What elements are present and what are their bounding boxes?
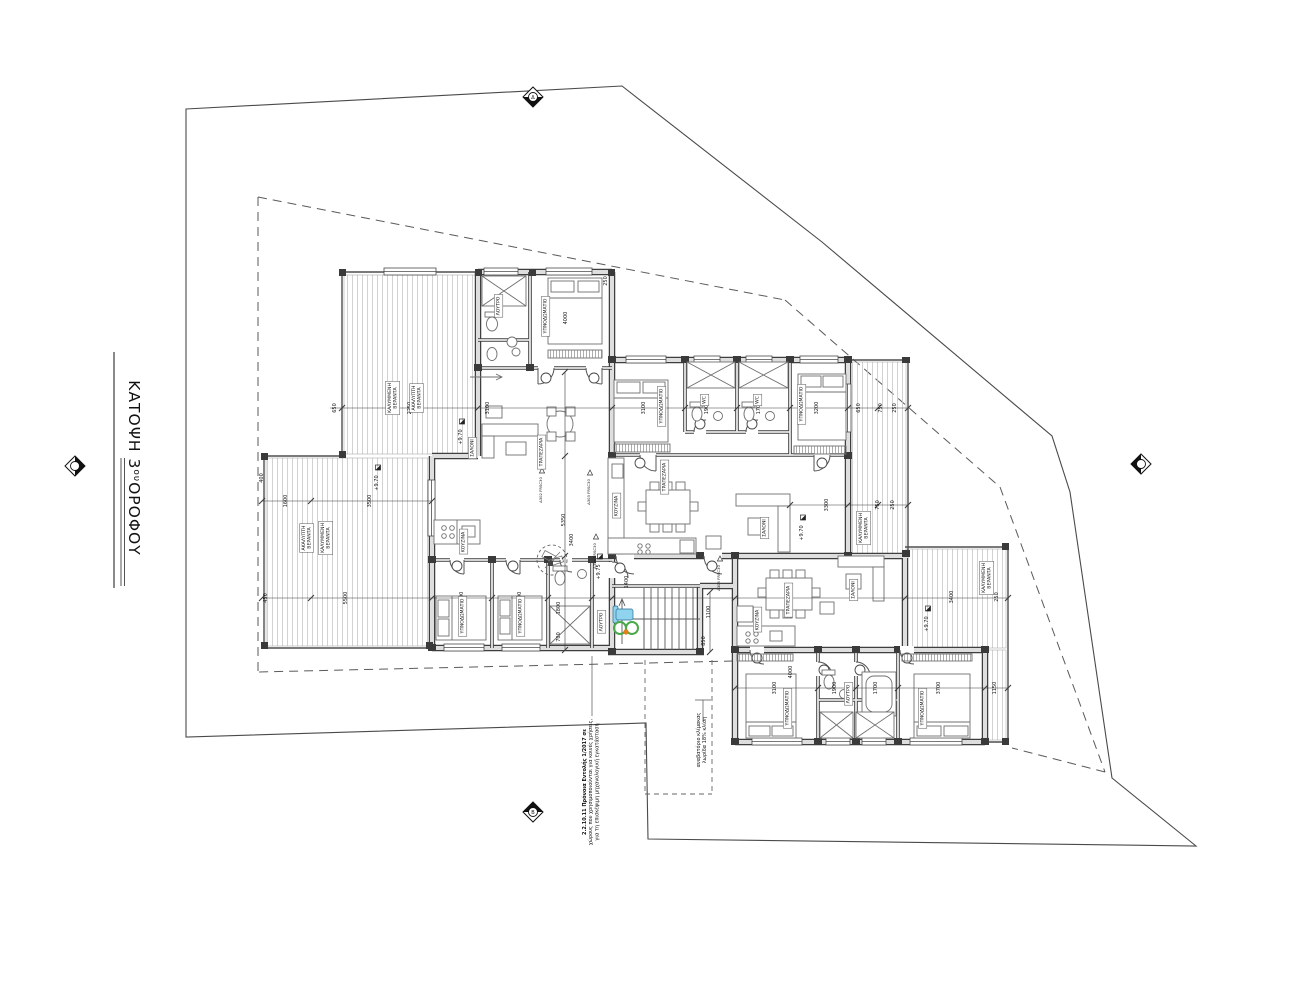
dimension-label: 250 bbox=[890, 500, 896, 510]
dimension-label: 650 bbox=[332, 403, 338, 413]
benchmark-marker-icon: Β bbox=[523, 802, 543, 822]
svg-text:+9.70: +9.70 bbox=[924, 616, 930, 631]
floor-plan-page: 6502250310031001900170032006507502502504… bbox=[0, 0, 1308, 981]
svg-text:Δ: Δ bbox=[531, 95, 535, 101]
svg-text:ΣΑΛΟΝΙ: ΣΑΛΟΝΙ bbox=[851, 581, 857, 599]
room-label: ΑΚΑΛΥΠΤΗΒΕΡΑΝΤΑ bbox=[410, 384, 424, 413]
dimension-label: 3500 bbox=[367, 495, 373, 508]
coffee-table bbox=[506, 442, 526, 455]
sink bbox=[578, 570, 587, 579]
fire-door-tag: Δ304 FRSC30 bbox=[592, 534, 599, 569]
fire-door-tag: Δ303 FRSC30 bbox=[586, 470, 593, 505]
dimension-label: 1700 bbox=[873, 682, 879, 695]
room-label: ΥΠΝΟΔΩΜΑΤΙΟ bbox=[918, 688, 926, 728]
benchmark-marker-icon bbox=[65, 456, 85, 476]
page-title: ΚΑΤΟΨΗ 3ουΟΡΟΦΟΥ bbox=[125, 380, 143, 555]
room-label: ΚΟΥΖΙΝΑ bbox=[753, 607, 761, 632]
shower bbox=[856, 712, 894, 738]
svg-text:2.2.10.11 Πρόνοια Εντολής 1/20: 2.2.10.11 Πρόνοια Εντολής 1/2017 σε bbox=[581, 729, 588, 835]
svg-text:ΥΠΝΟΔΩΜΑΤΙΟ: ΥΠΝΟΔΩΜΑΤΙΟ bbox=[920, 690, 926, 726]
veranda-top-left bbox=[344, 275, 476, 454]
window bbox=[502, 644, 540, 651]
svg-text:λωρίδα 18% κλίση: λωρίδα 18% κλίση bbox=[701, 717, 708, 764]
room-label: ΤΡΑΠΕΖΑΡΙΑ bbox=[784, 583, 792, 617]
dimension-label: 400 bbox=[259, 473, 265, 483]
room-label: ΚΑΛΥΜΜΕΝΗΒΕΡΑΝΤΑ bbox=[980, 561, 994, 594]
lift-seat bbox=[616, 609, 633, 620]
window bbox=[910, 738, 962, 745]
dining-table-round bbox=[547, 407, 575, 441]
window bbox=[826, 738, 850, 745]
room-label: ΥΠΝΟΔΩΜΑΤΙΟ bbox=[516, 596, 524, 636]
room-label: ΤΡΑΠΕΖΑΡΙΑ bbox=[537, 435, 545, 469]
room-label: ΣΑΛΟΝΙ bbox=[468, 437, 476, 458]
dimension-label: 750 bbox=[875, 500, 881, 510]
dimension-label: 1400 bbox=[624, 576, 630, 589]
svg-text:ΤΡΑΠΕΖΑΡΙΑ: ΤΡΑΠΕΖΑΡΙΑ bbox=[662, 462, 668, 492]
room-label: ΑΚΑΛΥΠΤΗΒΕΡΑΝΤΑ bbox=[300, 524, 314, 553]
delta-triangle-icon bbox=[587, 470, 592, 475]
svg-text:+9.70: +9.70 bbox=[374, 475, 380, 490]
sink bbox=[714, 412, 723, 421]
svg-text:Δ302 FRSC30: Δ302 FRSC30 bbox=[538, 477, 543, 503]
toilet bbox=[742, 402, 755, 421]
svg-text:Β: Β bbox=[531, 810, 535, 816]
svg-text:+9.70: +9.70 bbox=[458, 429, 464, 444]
window bbox=[626, 356, 666, 363]
dimension-label: 650 bbox=[856, 403, 862, 413]
room-label: ΚΑΛΥΜΜΕΝΗΒΕΡΑΝΤΑ bbox=[319, 521, 333, 554]
dimension-label: 850 bbox=[701, 636, 707, 646]
window bbox=[546, 268, 592, 275]
veranda-bottom-left bbox=[266, 458, 430, 646]
svg-text:ΤΡΑΠΕΖΑΡΙΑ: ΤΡΑΠΕΖΑΡΙΑ bbox=[786, 585, 792, 615]
drawing-title: ΚΑΤΟΨΗ 3ουΟΡΟΦΟΥ bbox=[125, 380, 143, 555]
window bbox=[444, 644, 484, 651]
sink bbox=[766, 412, 775, 421]
window bbox=[862, 738, 886, 745]
svg-text:ΥΠΝΟΔΩΜΑΤΙΟ: ΥΠΝΟΔΩΜΑΤΙΟ bbox=[543, 298, 549, 334]
sink bbox=[512, 348, 520, 356]
svg-text:ΚΑΛΥΜΜΕΝΗΒΕΡΑΝΤΑ: ΚΑΛΥΜΜΕΝΗΒΕΡΑΝΤΑ bbox=[858, 513, 870, 543]
svg-text:για τη επισκέψιμη μηχανολογική: για τη επισκέψιμη μηχανολογική εγκατάστα… bbox=[593, 723, 600, 840]
dimension-label: 700 bbox=[556, 632, 562, 642]
svg-text:ΚΑΛΥΜΜΕΝΗΒΕΡΑΝΤΑ: ΚΑΛΥΜΜΕΝΗΒΕΡΑΝΤΑ bbox=[320, 523, 332, 553]
dimension-label: 3300 bbox=[824, 499, 830, 512]
svg-text:ΥΠΝΟΔΩΜΑΤΙΟ: ΥΠΝΟΔΩΜΑΤΙΟ bbox=[799, 386, 805, 422]
dimension-label: 4000 bbox=[788, 666, 794, 679]
note-text: 2.2.10.11 Πρόνοια Εντολής 1/2017 σεχώρου… bbox=[581, 718, 600, 845]
room-label: ΥΠΝΟΔΩΜΑΤΙΟ bbox=[657, 386, 665, 426]
svg-text:ΥΠΝΟΔΩΜΑΤΙΟ: ΥΠΝΟΔΩΜΑΤΙΟ bbox=[785, 690, 791, 726]
svg-text:ΚΑΛΥΜΜΕΝΗΒΕΡΑΝΤΑ: ΚΑΛΥΜΜΕΝΗΒΕΡΑΝΤΑ bbox=[387, 383, 399, 413]
room-label: ΛΟΥΤΡΟ bbox=[844, 682, 852, 705]
dimension-label: 250 bbox=[603, 276, 609, 286]
bed bbox=[548, 278, 602, 344]
room-label: ΥΠΝΟΔΩΜΑΤΙΟ bbox=[541, 296, 549, 336]
delta-triangle-icon bbox=[593, 534, 598, 539]
room-label: ΥΠΝΟΔΩΜΑΤΙΟ bbox=[797, 384, 805, 424]
dimension-label: 1600 bbox=[283, 495, 289, 508]
room-label: ΚΑΛΥΜΜΕΝΗΒΕΡΑΝΤΑ bbox=[386, 381, 400, 414]
svg-text:ΥΠΝΟΔΩΜΑΤΙΟ: ΥΠΝΟΔΩΜΑΤΙΟ bbox=[518, 598, 524, 634]
dimension-label: 750 bbox=[878, 403, 884, 413]
svg-text:ΛΟΥΤΡΟ: ΛΟΥΤΡΟ bbox=[846, 684, 852, 703]
svg-text:ΛΟΥΤΡΟ: ΛΟΥΤΡΟ bbox=[599, 612, 605, 631]
dimension-label: 5350 bbox=[561, 514, 567, 527]
sofa bbox=[838, 556, 884, 601]
level-mark: +9.70 bbox=[799, 515, 806, 541]
fire-door-tag: Δ302 FRSC30 bbox=[538, 468, 545, 503]
svg-text:ΣΑΛΟΝΙ: ΣΑΛΟΝΙ bbox=[762, 519, 768, 537]
svg-text:αναβατόριο κλίμακας: αναβατόριο κλίμακας bbox=[695, 713, 702, 768]
sofa bbox=[482, 424, 538, 458]
dimension-label: 5500 bbox=[343, 592, 349, 605]
room-label: WC bbox=[753, 394, 761, 405]
room-label: ΣΑΛΟΝΙ bbox=[849, 579, 857, 600]
svg-text:ΑΚΑΛΥΠΤΗΒΕΡΑΝΤΑ: ΑΚΑΛΥΠΤΗΒΕΡΑΝΤΑ bbox=[411, 386, 423, 411]
dimension-label: 1900 bbox=[832, 682, 838, 695]
svg-text:Δ303 FRSC30: Δ303 FRSC30 bbox=[586, 479, 591, 505]
dimension-label: 3400 bbox=[569, 534, 575, 547]
room-label: ΥΠΝΟΔΩΜΑΤΙΟ bbox=[783, 688, 791, 728]
svg-text:ΚΟΥΖΙΝΑ: ΚΟΥΖΙΝΑ bbox=[755, 609, 761, 630]
benchmark-marker-icon bbox=[1131, 454, 1151, 474]
dimension-label: 1800 bbox=[556, 602, 562, 615]
dimension-label: 1150 bbox=[992, 682, 998, 695]
svg-text:ΥΠΝΟΔΩΜΑΤΙΟ: ΥΠΝΟΔΩΜΑΤΙΟ bbox=[659, 388, 665, 424]
shower bbox=[482, 276, 526, 306]
window bbox=[800, 356, 838, 363]
room-label: WC bbox=[700, 394, 708, 405]
svg-text:ΚΟΥΖΙΝΑ: ΚΟΥΖΙΝΑ bbox=[461, 531, 467, 552]
window bbox=[484, 268, 518, 275]
dimension-label: 3200 bbox=[814, 402, 820, 415]
shower bbox=[739, 362, 788, 388]
room-label: ΛΟΥΤΡΟ bbox=[494, 294, 502, 317]
svg-text:Δ305 FRSC30: Δ305 FRSC30 bbox=[716, 565, 721, 591]
closet bbox=[737, 654, 793, 661]
svg-text:ΑΚΑΛΥΠΤΗΒΕΡΑΝΤΑ: ΑΚΑΛΥΠΤΗΒΕΡΑΝΤΑ bbox=[301, 526, 313, 551]
window bbox=[752, 738, 802, 745]
room-label: ΚΟΥΖΙΝΑ bbox=[612, 493, 620, 518]
room-label: ΣΑΛΟΝΙ bbox=[760, 517, 768, 538]
closet bbox=[902, 654, 972, 661]
room-label: ΥΠΝΟΔΩΜΑΤΙΟ bbox=[458, 596, 466, 636]
room-label: ΤΡΑΠΕΖΑΡΙΑ bbox=[660, 460, 668, 494]
dimension-label: 3100 bbox=[772, 682, 778, 695]
dimension-label: 3100 bbox=[641, 402, 647, 415]
svg-text:Δ304 FRSC30: Δ304 FRSC30 bbox=[592, 543, 597, 569]
room-label: ΚΑΛΥΜΜΕΝΗΒΕΡΑΝΤΑ bbox=[857, 511, 871, 544]
shower bbox=[687, 362, 735, 388]
floor-plan-svg: 6502250310031001900170032006507502502504… bbox=[0, 0, 1308, 981]
dimension-label: 1100 bbox=[706, 606, 712, 619]
dimension-label: 3100 bbox=[485, 402, 491, 415]
closet bbox=[794, 446, 846, 454]
svg-text:WC: WC bbox=[702, 396, 708, 404]
closet bbox=[614, 444, 670, 452]
sink bbox=[507, 337, 517, 347]
svg-text:χώρους που χρησιμοποιούνται γι: χώρους που χρησιμοποιούνται για κοινές χ… bbox=[587, 718, 594, 845]
room-label: ΚΟΥΖΙΝΑ bbox=[459, 529, 467, 554]
dimension-label: 250 bbox=[892, 403, 898, 413]
dimension-label: 4000 bbox=[563, 312, 569, 325]
svg-text:ΥΠΝΟΔΩΜΑΤΙΟ: ΥΠΝΟΔΩΜΑΤΙΟ bbox=[460, 598, 466, 634]
fire-door-tags: Δ302 FRSC30Δ303 FRSC30Δ304 FRSC30Δ305 FR… bbox=[538, 468, 723, 591]
dimension-label: 3700 bbox=[936, 682, 942, 695]
radiator bbox=[548, 350, 602, 358]
toilet bbox=[487, 348, 497, 361]
title-block bbox=[114, 352, 125, 588]
shower bbox=[820, 712, 853, 738]
armchair bbox=[820, 602, 834, 614]
note-leaders bbox=[592, 656, 711, 722]
dimension-label: 250 bbox=[994, 592, 1000, 602]
wheelchair-lift-symbol bbox=[613, 606, 638, 635]
kitchen-counter bbox=[434, 520, 480, 544]
dimension-label: 3400 bbox=[949, 591, 955, 604]
svg-text:ΤΡΑΠΕΖΑΡΙΑ: ΤΡΑΠΕΖΑΡΙΑ bbox=[539, 437, 545, 467]
armchair bbox=[706, 536, 721, 549]
bathtub bbox=[862, 672, 896, 716]
note-text: αναβατόριο κλίμακαςλωρίδα 18% κλίση bbox=[695, 713, 708, 768]
svg-text:ΚΟΥΖΙΝΑ: ΚΟΥΖΙΝΑ bbox=[614, 495, 620, 516]
svg-text:ΛΟΥΤΡΟ: ΛΟΥΤΡΟ bbox=[496, 296, 502, 315]
svg-text:+9.70: +9.70 bbox=[799, 525, 805, 540]
lift-hub bbox=[623, 629, 628, 634]
svg-text:WC: WC bbox=[755, 396, 761, 404]
dimension-label: 450 bbox=[263, 593, 269, 603]
svg-text:ΚΑΛΥΜΜΕΝΗΒΕΡΑΝΤΑ: ΚΑΛΥΜΜΕΝΗΒΕΡΑΝΤΑ bbox=[981, 563, 993, 593]
room-label: ΛΟΥΤΡΟ bbox=[597, 610, 605, 633]
svg-text:ΣΑΛΟΝΙ: ΣΑΛΟΝΙ bbox=[470, 439, 476, 457]
window bbox=[384, 268, 436, 275]
